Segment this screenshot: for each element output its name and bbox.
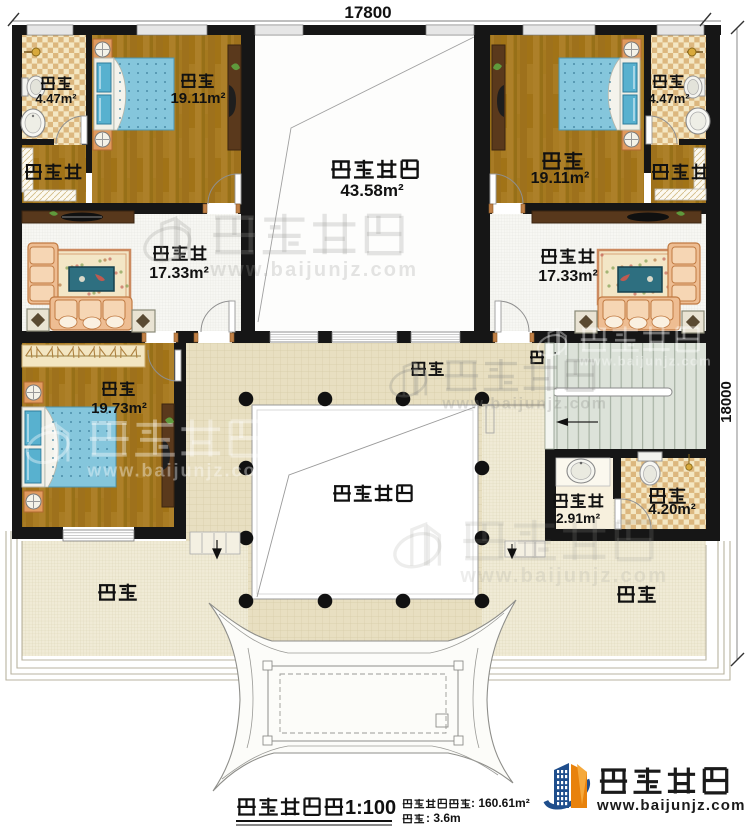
- svg-text:www.baijunjz.com: www.baijunjz.com: [86, 461, 274, 481]
- svg-text:1:100: 1:100: [345, 797, 396, 819]
- svg-text:4.47m²: 4.47m²: [35, 91, 77, 106]
- svg-text:4.47m²: 4.47m²: [648, 91, 690, 106]
- svg-text:: 3.6m: : 3.6m: [426, 811, 461, 825]
- svg-text:19.11m²: 19.11m²: [531, 170, 590, 187]
- svg-text:www.baijunjz.com: www.baijunjz.com: [441, 395, 607, 412]
- svg-text:43.58m²: 43.58m²: [340, 181, 404, 200]
- svg-text:www.baijunjz.com: www.baijunjz.com: [596, 797, 746, 814]
- svg-text:: 160.61m²: : 160.61m²: [471, 796, 530, 810]
- svg-text:www.baijunjz.com: www.baijunjz.com: [578, 353, 712, 368]
- svg-text:18000: 18000: [718, 381, 735, 423]
- svg-text:17800: 17800: [344, 3, 391, 22]
- svg-text:www.baijunjz.com: www.baijunjz.com: [459, 565, 668, 587]
- svg-text:4.20m²: 4.20m²: [648, 501, 696, 518]
- svg-text:17.33m²: 17.33m²: [149, 265, 209, 282]
- svg-text:17.33m²: 17.33m²: [538, 268, 598, 285]
- svg-text:19.73m²: 19.73m²: [91, 400, 147, 417]
- svg-text:19.11m²: 19.11m²: [170, 90, 225, 107]
- svg-text:www.baijunjz.com: www.baijunjz.com: [209, 259, 418, 281]
